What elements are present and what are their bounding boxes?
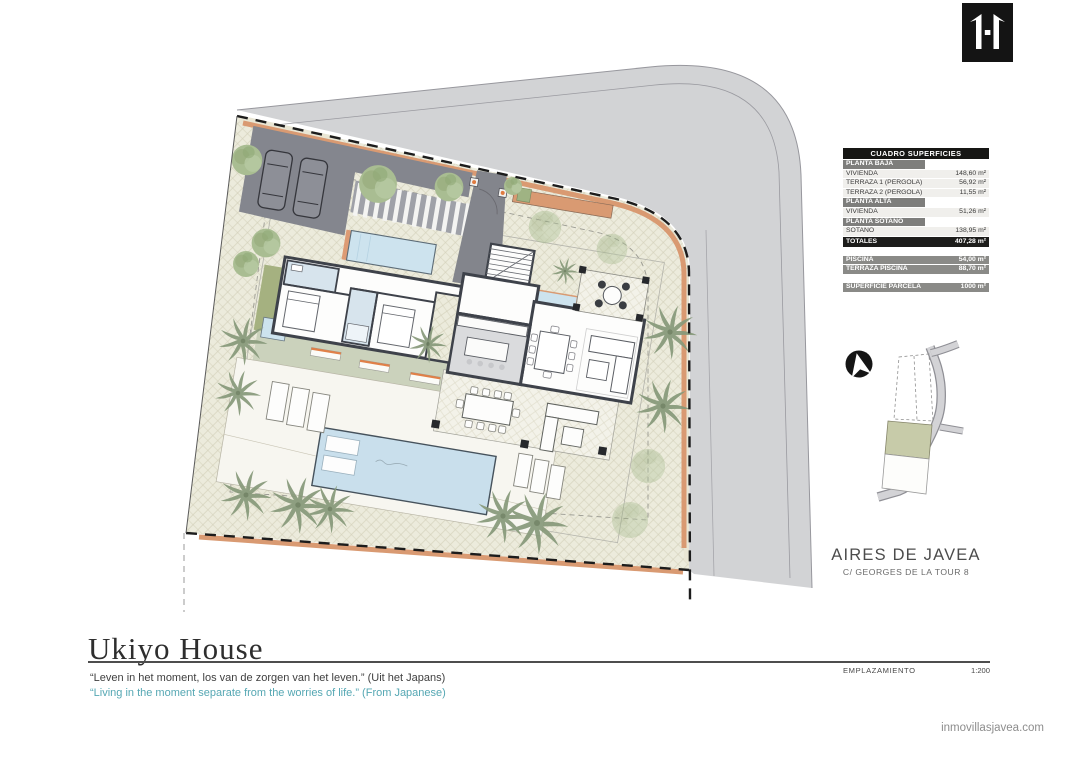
surface-row: SOTANO138,95 m² (843, 227, 989, 236)
surface-row: PISCINA54,00 m² (843, 256, 989, 265)
quote-dutch: “Leven in het moment, los van de zorgen … (90, 672, 445, 684)
surface-table-parcel-rows: SUPERFICIE PARCELA1000 m² (843, 283, 989, 292)
surface-table-pool-rows: PISCINA54,00 m²TERRAZA PISCINA88,70 m² (843, 256, 989, 274)
surface-row: PLANTA SÓTANO (843, 218, 925, 227)
location-map (878, 344, 963, 497)
surface-row: PLANTA BAJA (843, 160, 925, 169)
brand-logo-glyph (962, 3, 1013, 62)
website-link[interactable]: inmovillasjavea.com (941, 722, 1044, 734)
surface-row: PLANTA ALTA (843, 198, 925, 207)
surface-row: TERRAZA PISCINA88,70 m² (843, 265, 989, 274)
surface-row: TERRAZA 2 (PERGOLA)11,55 m² (843, 189, 989, 198)
scale-label: 1:200 (962, 666, 990, 675)
project-location: AIRES DE JAVEA C/ GEORGES DE LA TOUR 8 (825, 546, 987, 577)
surface-row: TOTALES407,28 m² (843, 237, 989, 247)
title-rule (88, 661, 990, 663)
north-arrow-icon (843, 348, 875, 380)
surface-table-rows: PLANTA BAJAVIVIENDA148,60 m²TERRAZA 1 (P… (843, 160, 989, 247)
quote-english: “Living in the moment separate from the … (90, 687, 446, 699)
brand-logo (962, 3, 1013, 62)
surface-row: VIVIENDA148,60 m² (843, 170, 989, 179)
surface-row: SUPERFICIE PARCELA1000 m² (843, 283, 989, 292)
surface-table-title: CUADRO SUPERFICIES (843, 148, 989, 159)
plan-type-label: EMPLAZAMIENTO (843, 666, 916, 675)
surface-table: CUADRO SUPERFICIES PLANTA BAJAVIVIENDA14… (843, 148, 989, 293)
location-address: C/ GEORGES DE LA TOUR 8 (825, 567, 987, 577)
highlighted-parcel (885, 421, 932, 459)
surface-row: TERRAZA 1 (PERGOLA)56,92 m² (843, 179, 989, 188)
location-name: AIRES DE JAVEA (825, 546, 987, 565)
surface-row: VIVIENDA51,26 m² (843, 208, 989, 217)
presentation-sheet: CUADRO SUPERFICIES PLANTA BAJAVIVIENDA14… (0, 0, 1084, 768)
